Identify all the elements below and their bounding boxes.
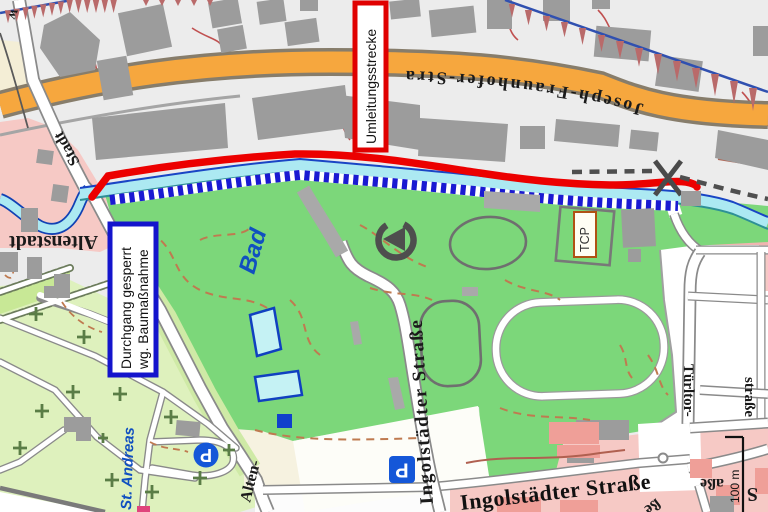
svg-text:straße: straße	[741, 377, 757, 417]
svg-text:wg. Baumaßnahme: wg. Baumaßnahme	[136, 249, 151, 370]
svg-text:Altenstadt: Altenstadt	[9, 231, 98, 253]
svg-text:Umleitungsstrecke: Umleitungsstrecke	[363, 29, 379, 144]
svg-text:P: P	[200, 445, 212, 465]
svg-text:S: S	[747, 483, 758, 505]
svg-text:St. Andreas: St. Andreas	[118, 427, 138, 510]
svg-text:100 m: 100 m	[728, 470, 742, 503]
svg-text:Türltor-: Türltor-	[680, 364, 696, 417]
svg-text:P: P	[395, 459, 408, 481]
svg-text:TCP: TCP	[578, 227, 592, 252]
svg-text:aße: aße	[700, 475, 724, 492]
svg-text:Durchgang gesperrt: Durchgang gesperrt	[119, 247, 134, 369]
